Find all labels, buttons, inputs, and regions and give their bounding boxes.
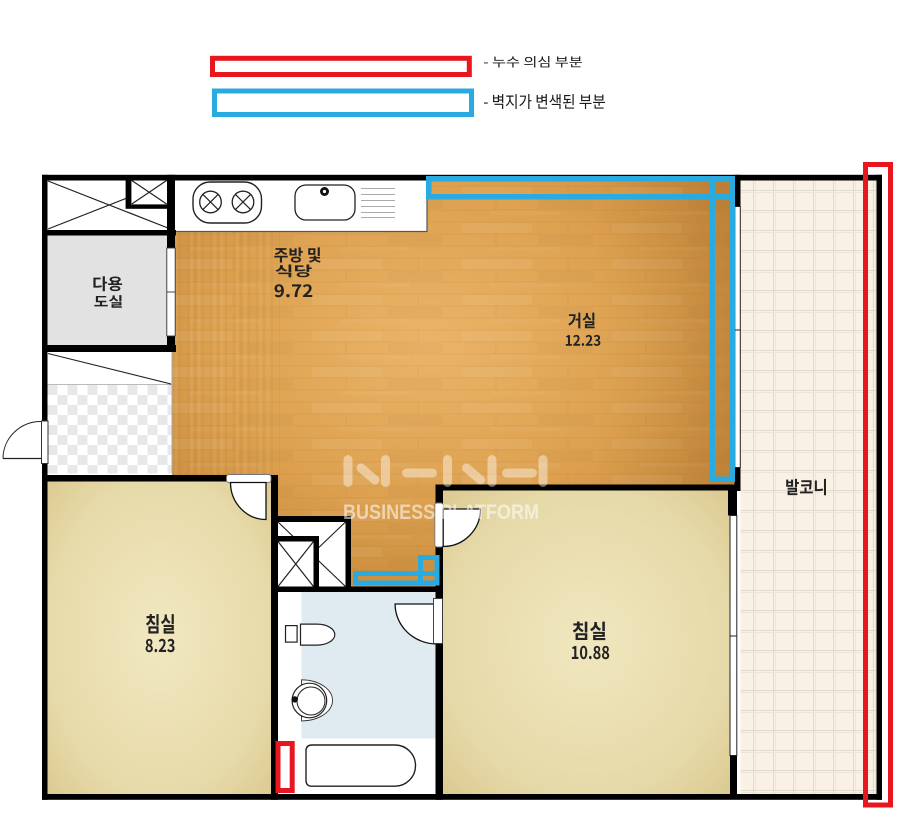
svg-text:BUSINESS PLATFORM: BUSINESS PLATFORM <box>343 501 539 524</box>
